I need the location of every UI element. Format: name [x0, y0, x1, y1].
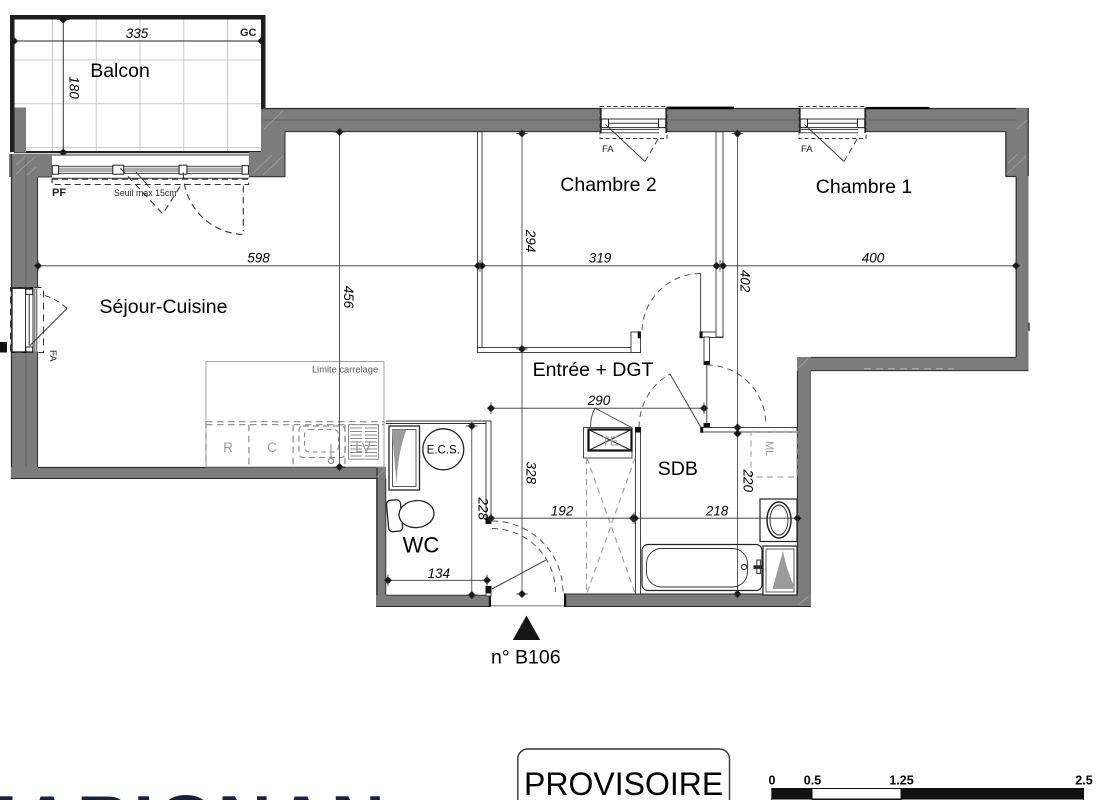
svg-text:1.25: 1.25	[889, 774, 913, 788]
svg-text:FA: FA	[47, 350, 58, 362]
svg-text:Séjour-Cuisine: Séjour-Cuisine	[100, 296, 228, 318]
svg-text:335: 335	[126, 26, 149, 41]
svg-text:0: 0	[769, 774, 776, 788]
svg-text:192: 192	[551, 504, 574, 519]
svg-text:Seuil max 15cm: Seuil max 15cm	[114, 188, 177, 198]
svg-text:WC: WC	[403, 533, 440, 558]
svg-text:2.5: 2.5	[1075, 774, 1092, 788]
svg-text:598: 598	[247, 250, 270, 265]
svg-text:PF: PF	[52, 187, 66, 199]
svg-text:328: 328	[524, 462, 539, 485]
svg-text:400: 400	[862, 250, 885, 265]
svg-text:ML: ML	[763, 441, 775, 456]
svg-text:LV: LV	[355, 440, 371, 455]
svg-text:220: 220	[740, 469, 755, 493]
svg-text:GC: GC	[240, 27, 257, 39]
svg-text:218: 218	[705, 504, 729, 519]
svg-text:PROVISOIRE: PROVISOIRE	[524, 766, 723, 800]
svg-text:R: R	[223, 440, 233, 455]
svg-text:n° B106: n° B106	[491, 647, 561, 669]
svg-text:Chambre 1: Chambre 1	[816, 176, 912, 198]
svg-text:SDB: SDB	[658, 458, 698, 480]
svg-text:456: 456	[341, 286, 356, 309]
svg-text:319: 319	[589, 250, 612, 265]
svg-text:C: C	[267, 440, 277, 455]
svg-text:MARIGNAN: MARIGNAN	[0, 780, 387, 800]
svg-text:FA: FA	[602, 144, 614, 155]
svg-text:402: 402	[738, 270, 753, 293]
svg-text:180: 180	[67, 76, 82, 99]
svg-text:FA: FA	[801, 144, 813, 155]
svg-text:294: 294	[523, 229, 538, 253]
svg-text:228: 228	[476, 496, 491, 520]
svg-text:Balcon: Balcon	[90, 60, 150, 82]
svg-text:Chambre 2: Chambre 2	[560, 174, 656, 196]
svg-text:Limite carrelage: Limite carrelage	[312, 365, 378, 375]
svg-text:Entrée + DGT: Entrée + DGT	[533, 359, 654, 381]
svg-text:0.5: 0.5	[804, 774, 821, 788]
svg-text:290: 290	[587, 393, 611, 408]
svg-text:E.C.S.: E.C.S.	[427, 445, 460, 457]
svg-text:TE: TE	[602, 434, 619, 449]
svg-text:134: 134	[428, 566, 451, 581]
